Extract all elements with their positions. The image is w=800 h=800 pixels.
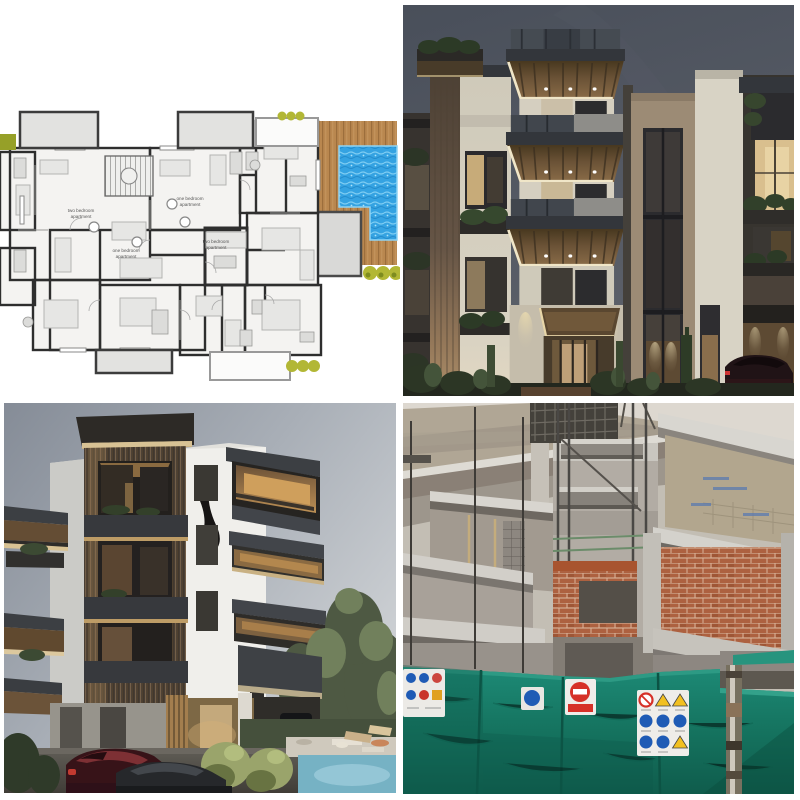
svg-text:two bedroom: two bedroom [203, 239, 230, 244]
svg-text:one bedroom: one bedroom [112, 248, 139, 253]
svg-text:one bedroom: one bedroom [176, 196, 203, 201]
svg-text:apartment: apartment [116, 254, 137, 259]
svg-text:apartment: apartment [206, 245, 227, 250]
svg-text:apartment: apartment [71, 214, 92, 219]
svg-text:apartment: apartment [180, 202, 201, 207]
svg-text:two bedroom: two bedroom [68, 208, 95, 213]
